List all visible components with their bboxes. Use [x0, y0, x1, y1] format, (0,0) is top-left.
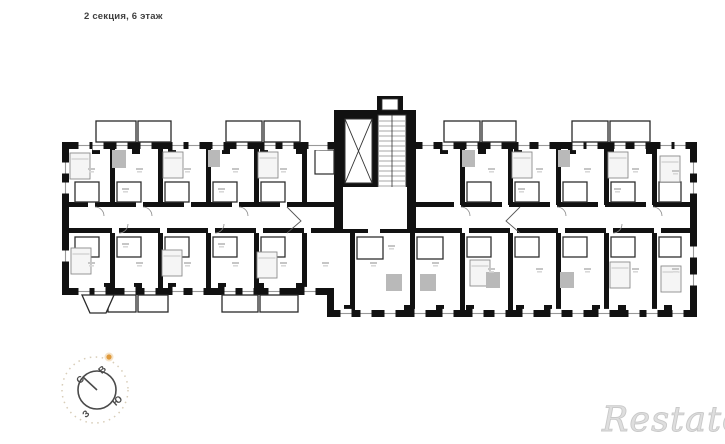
watermark-logo: Restate — [602, 398, 725, 442]
stair-core — [315, 96, 416, 235]
elevator-icon — [345, 119, 372, 183]
compass-label-west: З — [80, 408, 92, 420]
compass-dot — [106, 354, 111, 359]
compass-rose: С В Ю З — [56, 348, 140, 432]
page: 2 секция, 6 этаж — [0, 0, 725, 444]
core-lobby — [343, 187, 407, 229]
